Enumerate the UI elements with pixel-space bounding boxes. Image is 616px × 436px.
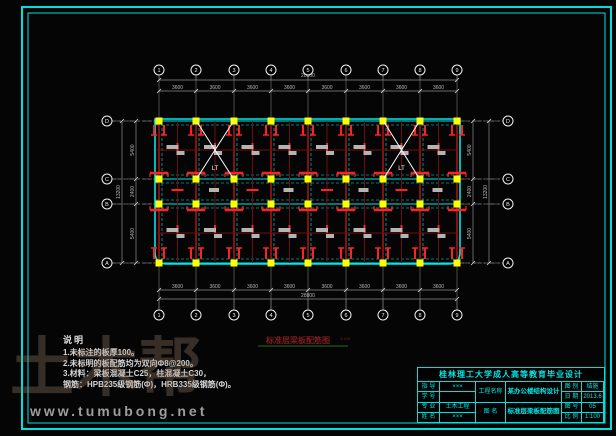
svg-text:8: 8 (418, 313, 421, 319)
svg-text:1: 1 (157, 313, 160, 319)
svg-text:3600: 3600 (209, 284, 220, 290)
beam-lines (157, 121, 458, 263)
svg-text:4: 4 (269, 313, 272, 319)
tb-label: 比 例 (562, 413, 582, 423)
svg-text:3600: 3600 (172, 284, 183, 290)
svg-text:4: 4 (269, 68, 272, 74)
svg-text:LT: LT (212, 166, 219, 172)
svg-text:13200: 13200 (116, 185, 122, 199)
svg-text:3600: 3600 (172, 85, 183, 91)
svg-text:3600: 3600 (284, 85, 295, 91)
svg-text:6: 6 (344, 313, 347, 319)
svg-text:5400: 5400 (130, 228, 136, 239)
svg-text:5400: 5400 (467, 228, 473, 239)
tb-value-project-name: 某办公楼结构设计 (506, 382, 562, 403)
svg-text:3: 3 (232, 313, 235, 319)
notes-lines: 1.未标注的板厚100。2.未标明的板配筋均为双向Φ8@200。3.材料：梁板混… (63, 348, 236, 390)
svg-text:2: 2 (194, 68, 197, 74)
svg-text:2400: 2400 (130, 186, 136, 197)
notes-line: 1.未标注的板厚100。 (63, 348, 236, 359)
svg-text:C: C (105, 177, 109, 183)
svg-text:B: B (506, 202, 510, 208)
tb-label: 学 号 (418, 392, 440, 402)
svg-text:D: D (105, 119, 109, 125)
svg-text:B: B (105, 202, 109, 208)
svg-text:3600: 3600 (359, 85, 370, 91)
svg-text:5400: 5400 (467, 144, 473, 155)
title-block-grid: 指 导 ××× 工程名称 某办公楼结构设计 图 别 结施 学 号 日 期 201… (418, 382, 604, 423)
svg-text:5400: 5400 (130, 144, 136, 155)
notes-line: 2.未标明的板配筋均为双向Φ8@200。 (63, 359, 236, 370)
svg-text:3600: 3600 (396, 284, 407, 290)
svg-text:9: 9 (455, 68, 458, 74)
svg-text:2: 2 (194, 313, 197, 319)
svg-text:5: 5 (306, 68, 309, 74)
cad-viewport: 2880036003600360036003600360036003600360… (0, 0, 616, 436)
svg-text:D: D (506, 119, 510, 125)
slab-rebar-labels (167, 145, 446, 238)
tb-value: 2013.6 (582, 392, 604, 402)
svg-text:7: 7 (381, 68, 384, 74)
tb-label: 工程名称 (476, 382, 506, 403)
tb-value: ××× (440, 413, 476, 423)
notes-heading: 说明 (63, 333, 236, 346)
svg-text:9: 9 (455, 313, 458, 319)
tb-label: 日 期 (562, 392, 582, 402)
svg-text:标准层梁板配筋图: 标准层梁板配筋图 (265, 335, 330, 345)
svg-text:3: 3 (232, 68, 235, 74)
drawing-caption: 标准层梁板配筋图1:100 (258, 335, 351, 346)
svg-text:3600: 3600 (247, 85, 258, 91)
tb-value (440, 392, 476, 402)
tb-value-drawing-name: 标准层梁板配筋图 (506, 403, 562, 424)
notes-block: 说明 1.未标注的板厚100。2.未标明的板配筋均为双向Φ8@200。3.材料：… (63, 333, 236, 390)
svg-text:1: 1 (157, 68, 160, 74)
svg-text:28800: 28800 (301, 293, 315, 299)
tb-label: 图 别 (562, 382, 582, 392)
svg-text:3600: 3600 (359, 284, 370, 290)
svg-text:C: C (506, 177, 510, 183)
tb-label: 专 业 (418, 403, 440, 413)
svg-text:A: A (506, 261, 510, 267)
tb-value: 1:100 (582, 413, 604, 423)
svg-text:3600: 3600 (321, 85, 332, 91)
tb-value: 土木工程 (440, 403, 476, 413)
svg-text:3600: 3600 (433, 85, 444, 91)
svg-text:5: 5 (306, 313, 309, 319)
svg-text:3600: 3600 (321, 284, 332, 290)
svg-text:3600: 3600 (284, 284, 295, 290)
svg-text:6: 6 (344, 68, 347, 74)
svg-text:3600: 3600 (433, 284, 444, 290)
svg-text:A: A (105, 261, 109, 267)
svg-text:3600: 3600 (247, 284, 258, 290)
tb-value: 结施 (582, 382, 604, 392)
tb-value: 05 (582, 403, 604, 413)
svg-text:LT: LT (398, 166, 405, 172)
tb-label: 姓 名 (418, 413, 440, 423)
tb-label: 指 导 (418, 382, 440, 392)
notes-line: 3.材料：梁板混凝土C25，柱混凝土C30， (63, 369, 236, 380)
tb-label: 图 号 (562, 403, 582, 413)
svg-text:2400: 2400 (467, 186, 473, 197)
svg-text:1:100: 1:100 (340, 336, 351, 341)
title-block-heading: 桂林理工大学成人高等教育毕业设计 (418, 368, 604, 382)
svg-text:13200: 13200 (483, 185, 489, 199)
svg-text:7: 7 (381, 313, 384, 319)
tb-label: 图 名 (476, 403, 506, 424)
title-block: 桂林理工大学成人高等教育毕业设计 指 导 ××× 工程名称 某办公楼结构设计 图… (417, 367, 605, 423)
tb-value: ××× (440, 382, 476, 392)
svg-text:8: 8 (418, 68, 421, 74)
notes-line: 钢筋：HPB235级钢筋(Φ)，HRB335级钢筋(Φ)。 (63, 380, 236, 391)
svg-text:3600: 3600 (209, 85, 220, 91)
svg-text:3600: 3600 (396, 85, 407, 91)
